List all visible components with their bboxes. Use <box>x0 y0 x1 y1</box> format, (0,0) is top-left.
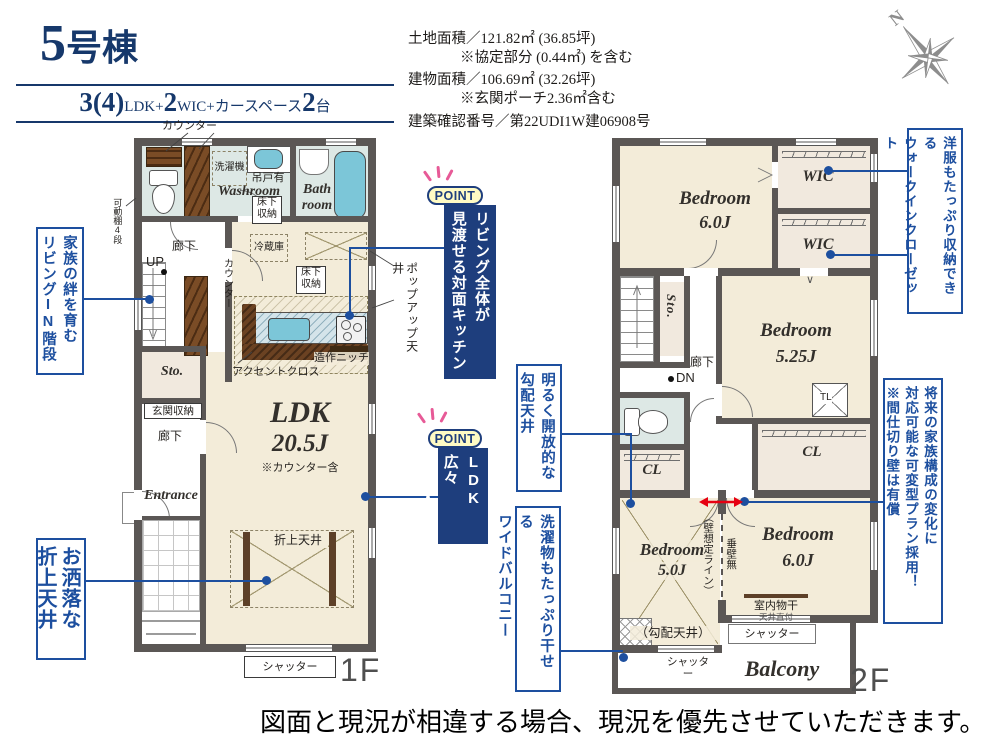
window <box>134 298 142 330</box>
wall-stub <box>718 600 726 616</box>
connector-dot <box>145 295 154 304</box>
wall <box>142 516 202 520</box>
popup-ceiling-label: ポップアップ天井 <box>390 262 418 360</box>
fridge-label: 冷蔵庫 <box>252 242 286 254</box>
window <box>326 138 356 146</box>
cl2-label: CL <box>788 444 836 461</box>
window <box>368 404 376 434</box>
pantry-cabinet <box>184 276 208 356</box>
page-title: 5号棟 <box>40 14 138 74</box>
bedroom1-label: Bedroom <box>660 188 770 210</box>
window <box>870 522 878 570</box>
shutter-label-2f-left: シャッター <box>662 656 714 680</box>
hall-2f-label: 廊下 <box>690 356 714 370</box>
title-number: 5 <box>40 15 66 72</box>
wic2-open-arrow: ∨ <box>806 274 814 287</box>
bedroom4-label: Bedroom <box>742 524 854 546</box>
door-gap <box>200 420 206 454</box>
window <box>660 138 706 146</box>
wall <box>684 392 690 490</box>
point-badge: POINT <box>427 186 483 205</box>
connector-line <box>84 298 150 300</box>
shutter-box-2f-right: シャッター <box>728 624 816 644</box>
bedroom2-label: Bedroom <box>740 320 852 342</box>
wic2-label: WIC <box>790 236 846 254</box>
bedroom1-size: 6.0J <box>660 212 770 233</box>
land-area: 土地面積／121.82㎡ (36.85坪) <box>408 30 650 49</box>
permit-number: 建築確認番号／第22UDI1W建06908号 <box>408 113 650 132</box>
window <box>796 138 836 146</box>
flyer-canvas: 5号棟 3(4)LDK+2WIC+カースペース2台 土地面積／121.82㎡ (… <box>0 0 1000 750</box>
connector-line <box>559 650 623 652</box>
annotation-sloped-ceiling: 明るく開放的な 勾配天井 <box>516 364 562 492</box>
sparkle-icon <box>417 412 426 424</box>
building-area: 建物面積／106.69㎡ (32.26坪) <box>408 71 650 90</box>
annotation-folded-ceiling: お洒落な 折上天井 <box>36 538 86 660</box>
shutter-box-1f: シャッター <box>244 656 336 678</box>
disclaimer-text: 図面と現況が相違する場合、現況を優先させていただきます。 <box>260 708 985 738</box>
connector-line <box>349 247 351 315</box>
up-label: UP <box>146 255 164 270</box>
wall <box>620 362 690 368</box>
cl1-hanger-rod <box>624 454 680 461</box>
wall <box>684 276 690 362</box>
bedroom4-size: 6.0J <box>742 550 854 571</box>
annotation-wic: 洋服もたっぷり収納できる ウォークインクローゼット <box>907 128 963 314</box>
annotation-point-kitchen: リビング全体が 見渡せる対面キッチン <box>444 205 496 379</box>
annotation-balcony: 洗濯物もたっぷり干せる ワイドバルコニー <box>515 506 561 692</box>
connector-line <box>349 247 444 249</box>
dn-label: DN <box>676 371 695 386</box>
up-dot <box>161 269 167 275</box>
wall <box>778 208 878 214</box>
connector-dot <box>361 492 370 501</box>
sparkle-icon <box>430 408 434 420</box>
ceiling-beam <box>243 532 250 606</box>
ldk-note-label: ※カウンター含 <box>250 462 350 475</box>
building-area-note: ※玄関ポーチ2.36㎡含む <box>408 90 650 109</box>
toilet-shelf <box>146 147 182 167</box>
wall <box>368 146 376 652</box>
window <box>870 154 878 182</box>
connector-dot <box>619 653 628 662</box>
wall <box>654 276 660 362</box>
point-badge: POINT <box>428 429 482 448</box>
window <box>612 528 620 574</box>
connector-line <box>745 501 885 503</box>
door-gap <box>772 162 778 188</box>
connector-dot <box>826 250 835 259</box>
entrance-porch-tiles <box>142 520 200 612</box>
site-info: 土地面積／121.82㎡ (36.85坪) ※協定部分 (0.44㎡) を含む … <box>408 30 650 132</box>
ldk-size-label: 20.5J <box>256 430 344 459</box>
underfloor-storage-label-b: 床下収納 <box>296 266 326 294</box>
underfloor-storage-label-a: 床下収納 <box>252 196 282 224</box>
niche-label: 造作ニッチ <box>314 352 369 365</box>
hanging-cabinet-label: 吊戸有 <box>246 172 290 185</box>
balcony-label: Balcony <box>726 656 838 681</box>
spec-divider-top <box>16 84 394 86</box>
assumed-wall-dashed <box>721 514 723 600</box>
shutter-window <box>658 645 714 653</box>
compass-rose-icon: N <box>862 8 982 103</box>
assumed-wall-label: （壁想定ライン） <box>702 512 714 616</box>
kitchen-counter-label: カウンター <box>221 258 233 314</box>
connector-dot <box>262 576 271 585</box>
wash-sink <box>254 149 283 169</box>
balcony-wall <box>612 653 618 693</box>
shutter-window <box>246 644 332 652</box>
annotation-point-ldk: LDK広々 20・5帖！ <box>438 448 488 544</box>
kitchen-sink <box>268 318 310 341</box>
window <box>870 300 878 356</box>
wall <box>134 146 142 652</box>
connector-line <box>86 580 266 582</box>
ceiling-beam <box>329 532 336 606</box>
sparkle-icon <box>445 169 453 181</box>
ceiling-mount-label: 天井直付 <box>750 613 802 623</box>
connector-dot <box>626 499 635 508</box>
entrance-label: Entrance <box>140 488 202 504</box>
spec-text3: 台 <box>316 99 331 115</box>
spec-text1: LDK+ <box>124 99 163 115</box>
door-gap <box>716 384 722 416</box>
no-hanging-wall-label: 垂壁無 <box>725 538 737 588</box>
indoor-drying-label: 室内物干 <box>746 600 806 613</box>
window <box>368 266 376 290</box>
stove <box>336 316 366 344</box>
wall <box>620 392 690 398</box>
sparkle-icon <box>423 170 432 182</box>
connector-dot <box>345 311 354 320</box>
connector-line <box>560 433 632 435</box>
wic2-hanger-rod <box>782 219 866 226</box>
ldk-label: LDK <box>256 396 344 431</box>
porch-step-line <box>142 620 200 622</box>
counter-top-label: カウンター <box>162 120 217 133</box>
svg-text:N: N <box>885 8 908 30</box>
accent-cloth-label: アクセントクロス <box>232 366 319 379</box>
toilet2f-bowl <box>638 410 668 434</box>
wall <box>716 418 870 424</box>
spec-text2: WIC+カースペース <box>177 99 302 115</box>
window <box>368 528 376 558</box>
balcony-wall <box>612 688 856 694</box>
floor-label-2f: 2F <box>850 662 891 699</box>
connector-dot <box>824 166 833 175</box>
laundry-label: 洗濯機 <box>213 162 246 174</box>
bathtub <box>334 151 366 219</box>
wic1-hanger-rod <box>782 151 866 158</box>
wall <box>752 424 758 490</box>
annotation-flexible-plan: 将来の家族構成の変化に 対応可能な可変型プラン採用！ ※間仕切り壁は有償 <box>883 378 943 624</box>
bathroom-label: Bathroom <box>296 182 338 214</box>
title-suffix: 号棟 <box>66 28 138 68</box>
spec-line: 3(4)LDK+2WIC+カースペース2台 <box>16 87 394 118</box>
folded-ceiling-label: 折上天井 <box>268 534 328 548</box>
spec-num2: 2 <box>164 87 178 117</box>
movable-shelf-label: 可動棚4段 <box>112 198 122 250</box>
bath-counter <box>299 149 329 175</box>
door-gap <box>684 268 718 276</box>
window <box>612 186 620 242</box>
floor-label-1f: 1F <box>340 652 381 689</box>
bedroom2-size: 5.25J <box>740 346 852 367</box>
sto1f-label: Sto. <box>150 364 194 380</box>
wall <box>620 268 878 276</box>
movable-wall-arrow-icon <box>698 494 744 510</box>
cl2-hanger-rod <box>762 430 866 437</box>
porch-step-line <box>146 633 196 635</box>
wall <box>612 138 878 146</box>
cabinet-between <box>184 146 210 222</box>
stairs-2f <box>620 276 654 362</box>
skylight-label: TL <box>820 392 832 404</box>
land-area-note: ※協定部分 (0.44㎡) を含む <box>408 49 650 68</box>
connector-line <box>630 433 632 503</box>
genkan-storage-label: 玄関収納 <box>144 403 202 419</box>
popup-ceiling-box <box>305 232 367 260</box>
spec-num1: 3(4) <box>79 87 124 117</box>
spec-num3: 2 <box>302 87 316 117</box>
sloped-ceiling-note: （勾配天井） <box>630 626 716 640</box>
annotation-living-stairs: 家族の絆を育む リビングIN階段 <box>36 227 84 375</box>
sparkle-icon <box>439 411 447 423</box>
sparkle-icon <box>436 166 440 178</box>
hall1-label: 廊下 <box>172 240 196 254</box>
dn-dot <box>668 376 674 382</box>
door-arc <box>690 398 714 422</box>
sto2f-label: Sto. <box>663 294 678 344</box>
window <box>182 138 212 146</box>
wall <box>142 346 202 352</box>
cl1-label: CL <box>632 462 672 479</box>
hall2-label: 廊下 <box>158 430 182 444</box>
indoor-drying-bar <box>744 594 808 598</box>
